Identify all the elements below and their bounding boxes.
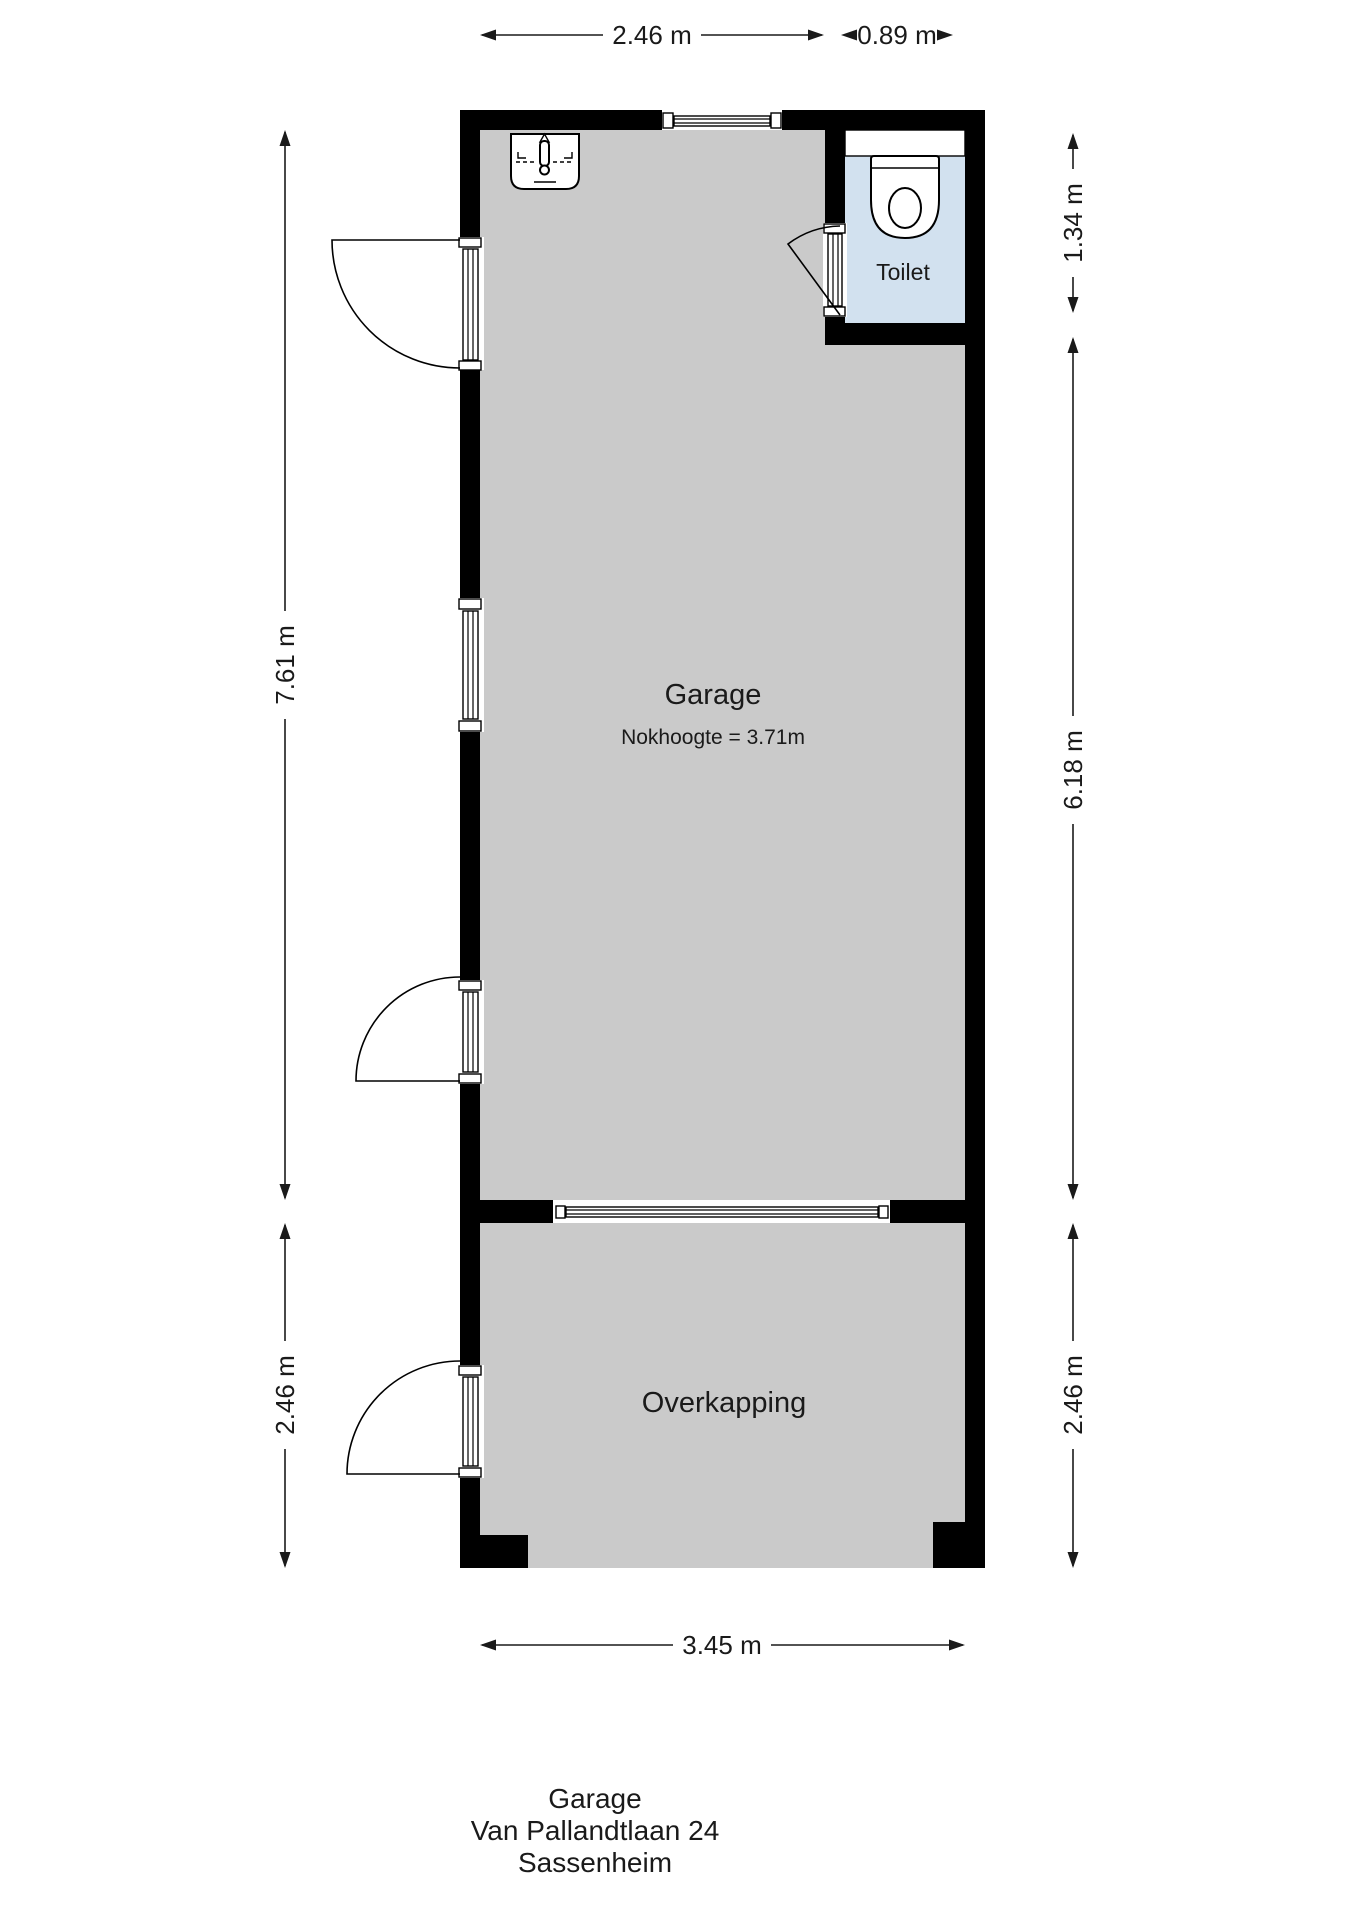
overkapping-room-label: Overkapping: [642, 1387, 806, 1419]
dimension-top-toilet: 0.89 m: [841, 20, 953, 50]
arrow-up-icon: [280, 130, 291, 146]
dimension-right-toilet: 1.34 m: [1058, 133, 1088, 313]
dimension-label-bottom: 3.45 m: [682, 1630, 762, 1660]
dimension-right-garage: 6.18 m: [1058, 337, 1088, 1200]
garage-room-label: Garage: [665, 679, 762, 711]
door-3-swing-arc: [347, 1361, 460, 1474]
door-1-swing-arc: [332, 240, 460, 368]
toilet-icon: [871, 156, 939, 238]
door-2-swing-arc: [356, 977, 460, 1081]
floorplan-canvas: 2.46 m 0.89 m 7.61 m 2.46 m 1.34 m 6.18 …: [0, 0, 1358, 1920]
garage-room-note: Nokhoogte = 3.71m: [621, 726, 805, 749]
dimension-left-garage: 7.61 m: [270, 130, 300, 1200]
arrow-down-icon: [1068, 1184, 1079, 1200]
left-window: [457, 598, 484, 732]
divider-track: [556, 1206, 888, 1218]
arrow-right-icon: [937, 30, 953, 41]
arrow-right-icon: [949, 1640, 965, 1651]
dimension-label-right-toilet: 1.34 m: [1058, 183, 1088, 263]
dimension-label-right-garage: 6.18 m: [1058, 730, 1088, 810]
dimension-bottom: 3.45 m: [480, 1630, 965, 1660]
arrow-down-icon: [280, 1552, 291, 1568]
footer-line-3: Sassenheim: [518, 1847, 672, 1878]
door-3: [347, 1361, 484, 1478]
dimension-top-garage: 2.46 m: [480, 20, 824, 50]
dimension-label-top-toilet: 0.89 m: [857, 20, 937, 50]
footer-line-1: Garage: [548, 1783, 641, 1814]
arrow-right-icon: [808, 30, 824, 41]
door-2: [356, 977, 484, 1084]
toilet-room-label: Toilet: [876, 259, 930, 285]
floorplan-page: 2.46 m 0.89 m 7.61 m 2.46 m 1.34 m 6.18 …: [0, 0, 1358, 1920]
dimension-right-overkapping: 2.46 m: [1058, 1223, 1088, 1568]
arrow-up-icon: [1068, 337, 1079, 353]
arrow-left-icon: [480, 30, 496, 41]
arrow-up-icon: [1068, 1223, 1079, 1239]
dimension-label-top-garage: 2.46 m: [612, 20, 692, 50]
arrow-left-icon: [480, 1640, 496, 1651]
door-1: [332, 237, 484, 370]
dimension-label-right-overkapping: 2.46 m: [1058, 1355, 1088, 1435]
arrow-down-icon: [1068, 1552, 1079, 1568]
dimension-left-overkapping: 2.46 m: [270, 1223, 300, 1568]
arrow-up-icon: [280, 1223, 291, 1239]
footer-title: Garage Van Pallandtlaan 24 Sassenheim: [471, 1783, 720, 1878]
arrow-left-icon: [841, 30, 857, 41]
arrow-down-icon: [280, 1184, 291, 1200]
dimension-label-left-overkapping: 2.46 m: [270, 1355, 300, 1435]
sink-icon: [511, 134, 579, 189]
arrow-down-icon: [1068, 297, 1079, 313]
dimension-label-left-garage: 7.61 m: [270, 625, 300, 705]
top-window: [662, 112, 782, 129]
arrow-up-icon: [1068, 133, 1079, 149]
footer-line-2: Van Pallandtlaan 24: [471, 1815, 720, 1846]
toilet-shelf: [845, 130, 965, 156]
